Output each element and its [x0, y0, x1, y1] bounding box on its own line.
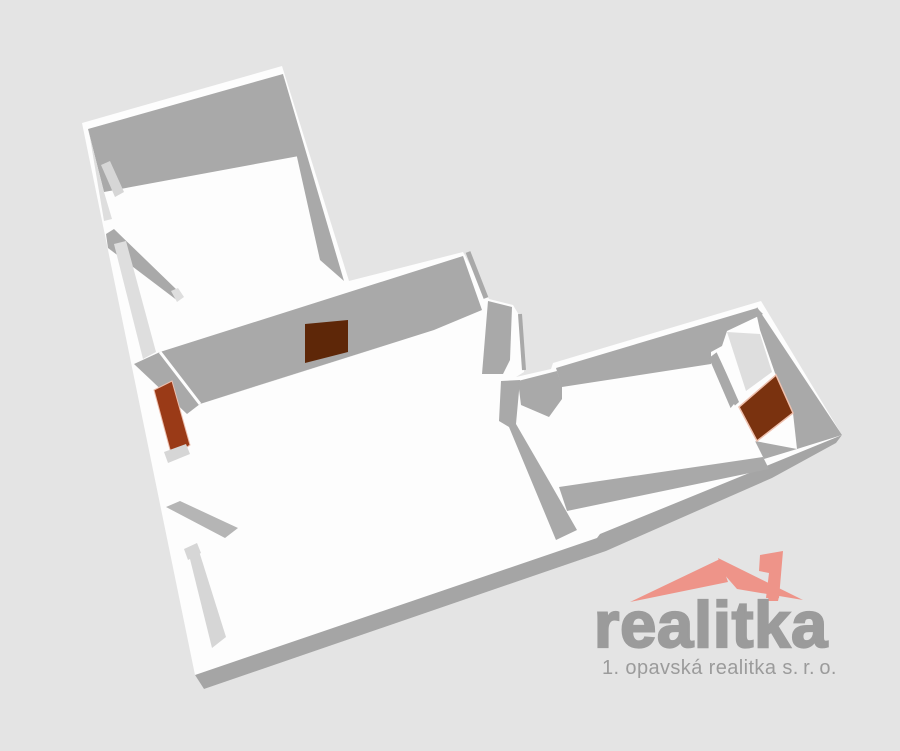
- svg-text:1. opavská realitka s. r. o.: 1. opavská realitka s. r. o.: [602, 657, 837, 679]
- svg-text:realitka: realitka: [594, 588, 828, 661]
